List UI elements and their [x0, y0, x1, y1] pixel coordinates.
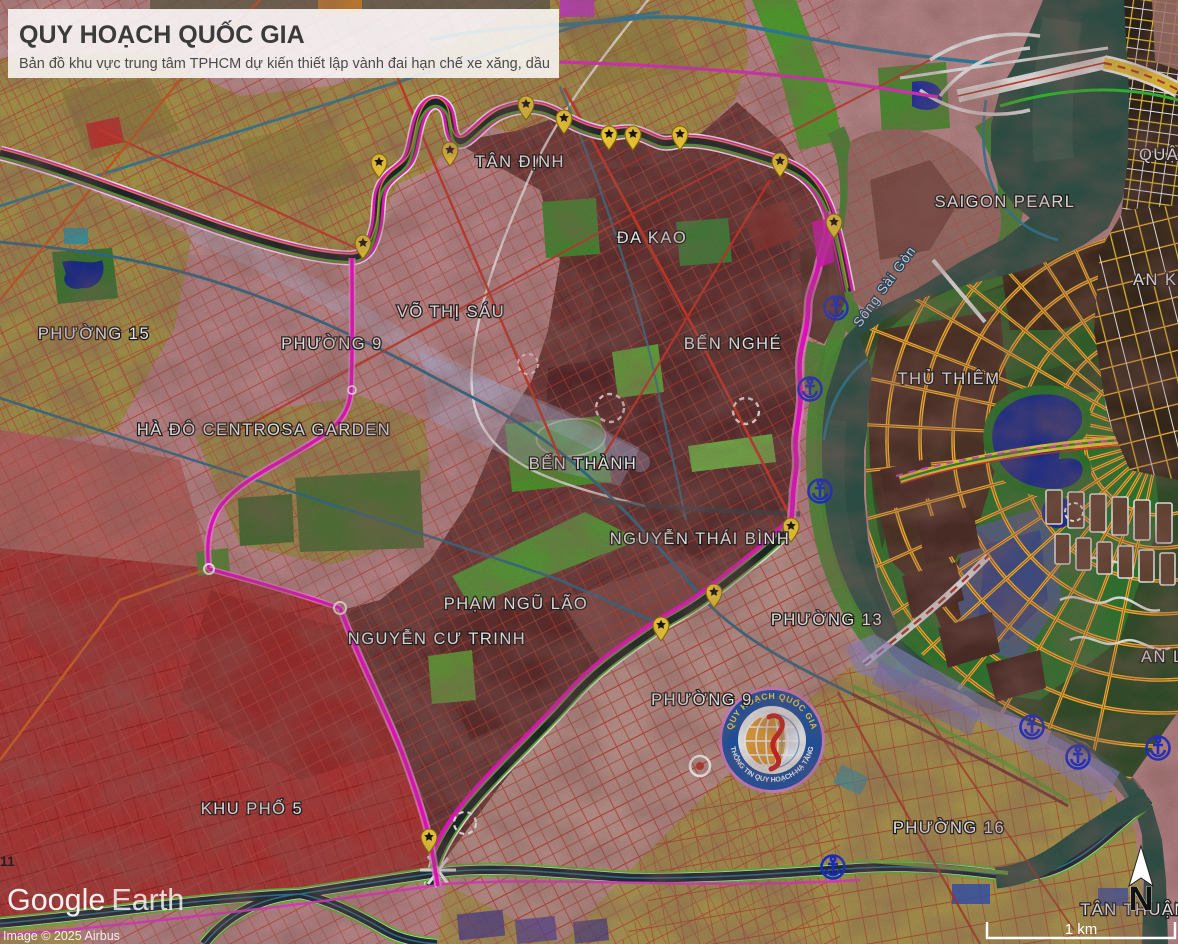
svg-text:GoogleEarth: GoogleEarth [7, 883, 184, 917]
svg-text:Image © 2025 Airbus: Image © 2025 Airbus [3, 929, 120, 943]
svg-text:N: N [1129, 880, 1154, 918]
svg-text:Bản đồ khu vực trung tâm TPHCM: Bản đồ khu vực trung tâm TPHCM dự kiến t… [19, 56, 550, 72]
svg-text:QUY HOẠCH QUỐC GIA: QUY HOẠCH QUỐC GIA [19, 19, 305, 49]
svg-text:1 km: 1 km [1065, 921, 1098, 938]
